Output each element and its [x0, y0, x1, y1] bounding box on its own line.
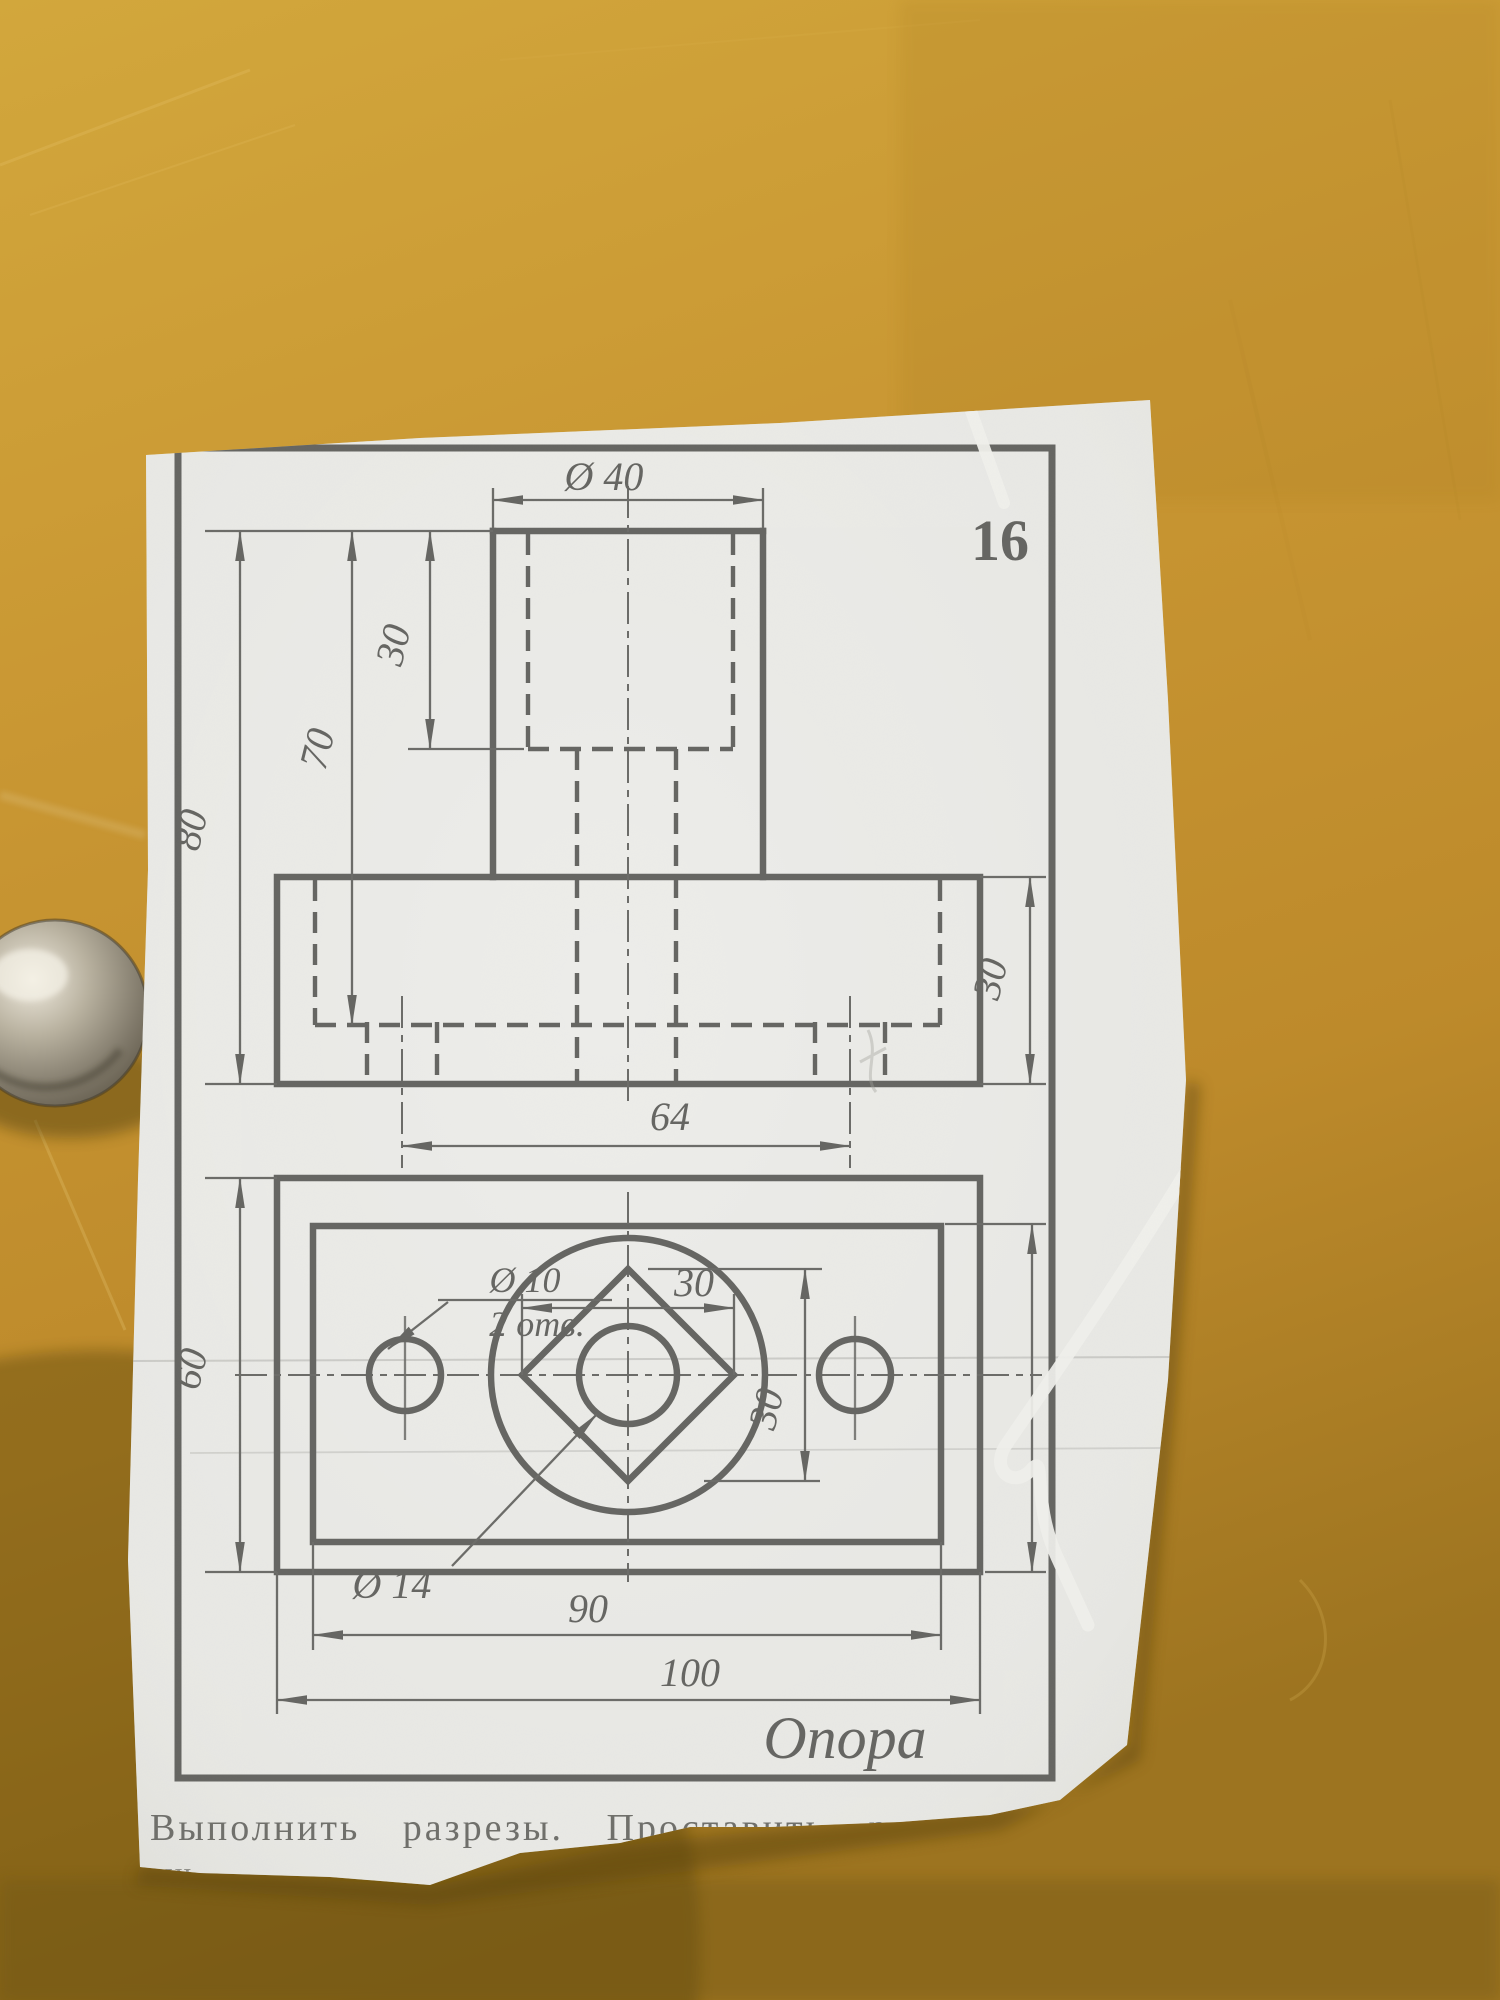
- wood-shade-bottom: [0, 1880, 1500, 2000]
- paper-grain: [120, 390, 1200, 1900]
- photo-of-technical-drawing: 16: [0, 0, 1500, 2000]
- paper-sheet: 16: [103, 330, 1200, 1900]
